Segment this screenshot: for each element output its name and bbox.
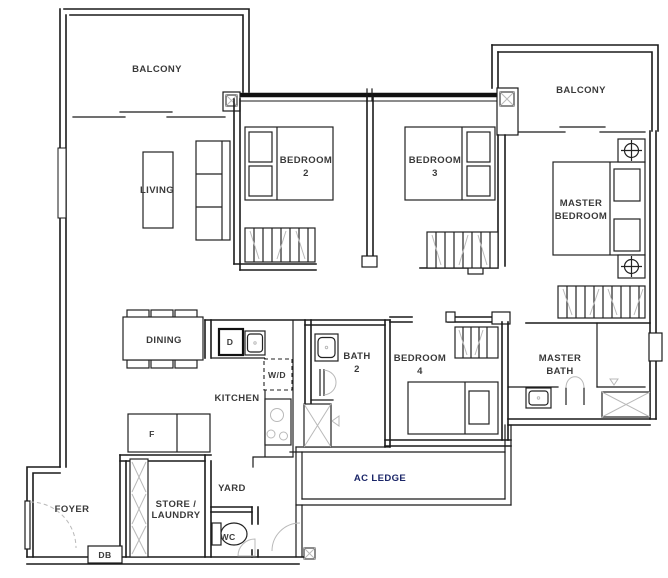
label-bedroom3: BEDROOM [409,155,461,166]
bedroom4-bed [408,382,498,434]
sofa [196,141,230,240]
label-store: STORE / [156,499,197,510]
bath2-fixtures [304,334,339,447]
label-bedroom2: BEDROOM [280,155,332,166]
master-bath-toilet [566,387,584,405]
label-bedroom4: BEDROOM [394,353,446,364]
label-bedroom2-num: 2 [303,168,309,179]
label-master-bath2: BATH [546,366,573,377]
label-living: LIVING [140,185,174,196]
label-dishwasher: D [227,337,234,347]
label-foyer: FOYER [55,504,90,515]
wardrobes [130,228,645,557]
floor-plan: BALCONY BALCONY LIVING BEDROOM 2 BEDROOM… [0,0,668,578]
label-bedroom4-num: 4 [417,366,423,377]
label-dining: DINING [146,335,182,346]
label-bath2-num: 2 [354,364,360,375]
living-window [58,148,66,218]
floor-drain-icon [610,379,618,385]
label-master-bedroom: MASTER [560,198,603,209]
label-kitchen: KITCHEN [214,393,259,404]
master-bath-window [649,333,662,361]
beds [123,127,645,434]
label-washer-dryer: W/D [268,370,286,380]
label-wc: WC [220,532,235,542]
label-fridge: F [149,429,155,439]
label-balcony-left: BALCONY [132,64,182,75]
label-bath2: BATH [343,351,370,362]
label-laundry: LAUNDRY [152,510,201,521]
bath2-toilet [320,369,324,396]
label-master-bedroom2: BEDROOM [555,211,607,222]
label-master-bath: MASTER [539,353,582,364]
fridge-counter [128,414,210,452]
label-bedroom3-num: 3 [432,168,438,179]
floor-plan-drawing: BALCONY BALCONY LIVING BEDROOM 2 BEDROOM… [0,0,668,578]
entry-door-leaf [25,501,30,549]
label-balcony-right: BALCONY [556,85,606,96]
bath2-door-swing-icon [332,416,339,426]
label-ac-ledge: AC LEDGE [354,473,406,484]
label-yard: YARD [218,483,246,494]
bedroom4-wardrobe [455,327,498,358]
label-db: DB [98,550,111,560]
